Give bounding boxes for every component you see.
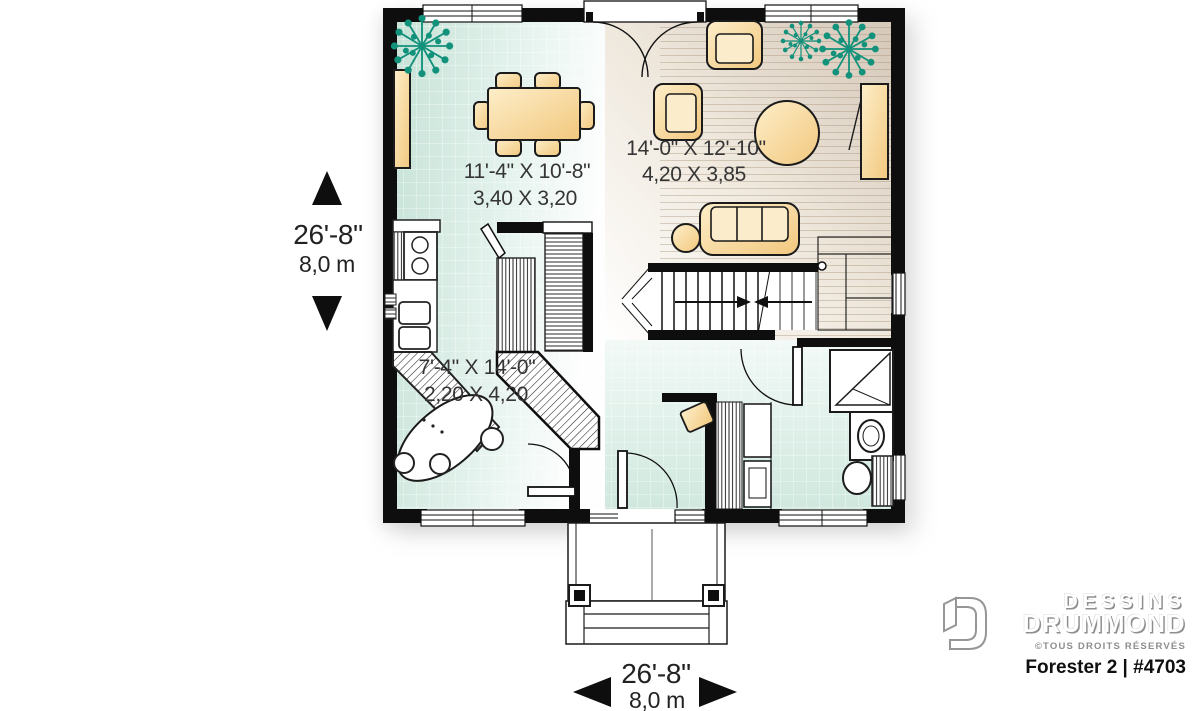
left-dimension-metric: 8,0 m: [299, 251, 355, 278]
toilet: [843, 462, 871, 494]
porch: [566, 523, 727, 644]
window-right-stair: [892, 273, 905, 315]
branding-block: DESSINS DRUMMOND ©TOUS DROITS RÉSERVÉS F…: [936, 592, 1186, 679]
stool: [394, 453, 414, 473]
kitchen-dimensions-imperial: 7'-4" X 14'-0": [419, 356, 536, 380]
media-unit: [861, 84, 888, 179]
window-right-bath: [892, 455, 905, 500]
basement-door-leaf: [528, 487, 575, 496]
dining-dimensions-metric: 3,40 X 3,20: [473, 187, 577, 211]
entry-sidelight: [590, 514, 618, 518]
stove-burner: [412, 258, 428, 274]
dining-table: [488, 88, 580, 140]
kitchen-dimensions-metric: 2,20 X 4,20: [424, 383, 528, 407]
newel-post: [818, 262, 826, 270]
hall-door-leaf: [793, 347, 802, 405]
dining-chair: [535, 139, 560, 156]
right-triangle-icon: [699, 677, 737, 707]
open-door-d-logo-icon: [936, 592, 988, 652]
porch-steps: [566, 601, 727, 644]
brand-name-line1: DESSINS: [1023, 592, 1186, 612]
stool: [430, 454, 450, 474]
down-triangle-icon: [312, 296, 342, 331]
floor-plan-page: 11'-4" X 10'-8" 3,40 X 3,20 14'-0" X 12'…: [0, 0, 1200, 711]
bottom-dimension-imperial: 26'-8": [621, 658, 691, 690]
window-top-left: [423, 5, 522, 22]
closet-shelf: [744, 404, 771, 457]
window-top-right: [765, 5, 858, 22]
stool: [481, 428, 503, 450]
entry-door-leaf: [618, 451, 627, 508]
window-bottom-right: [779, 510, 867, 526]
left-triangle-icon: [573, 677, 611, 707]
sink-bowl: [399, 327, 430, 349]
living-dimensions-metric: 4,20 X 3,85: [642, 163, 746, 187]
bottom-dimension-metric: 8,0 m: [629, 687, 685, 711]
dining-dimensions-imperial: 11'-4" X 10'-8": [464, 160, 591, 184]
dining-chair: [496, 139, 521, 156]
brand-name-line2: DRUMMOND: [1023, 612, 1186, 638]
living-dimensions-imperial: 14'-0" X 12'-10": [626, 137, 766, 161]
plan-name-and-number: Forester 2 | #4703: [936, 657, 1186, 679]
up-triangle-icon: [312, 171, 342, 205]
buffet: [394, 70, 410, 168]
left-dimension-imperial: 26'-8": [293, 219, 363, 251]
window-bottom-left: [421, 510, 525, 526]
stove-burner: [412, 237, 428, 253]
sink-bowl: [399, 302, 430, 324]
side-table: [672, 224, 700, 252]
